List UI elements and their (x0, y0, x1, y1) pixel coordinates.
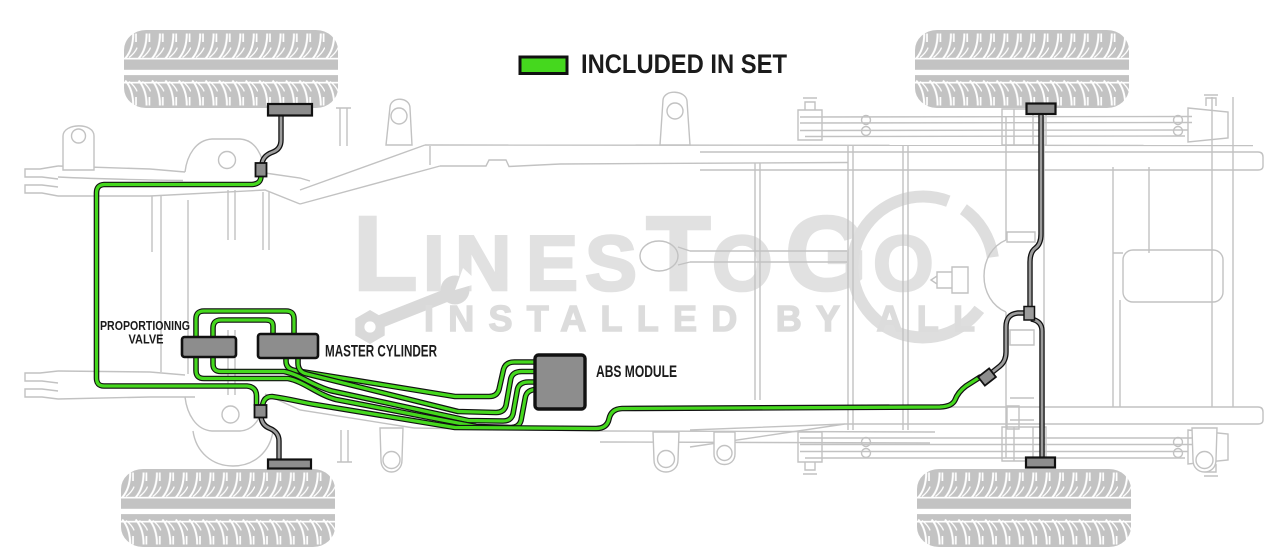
svg-text:O: O (712, 219, 773, 307)
svg-text:E: E (526, 219, 578, 307)
svg-text:VALVE: VALVE (129, 333, 164, 347)
svg-text:MASTER CYLINDER: MASTER CYLINDER (325, 343, 437, 361)
svg-text:L: L (353, 195, 418, 313)
svg-text:ABS MODULE: ABS MODULE (596, 363, 677, 381)
svg-text:INCLUDED IN SET: INCLUDED IN SET (581, 49, 787, 79)
svg-text:PROPORTIONING: PROPORTIONING (100, 319, 190, 333)
svg-text:S: S (585, 219, 637, 307)
